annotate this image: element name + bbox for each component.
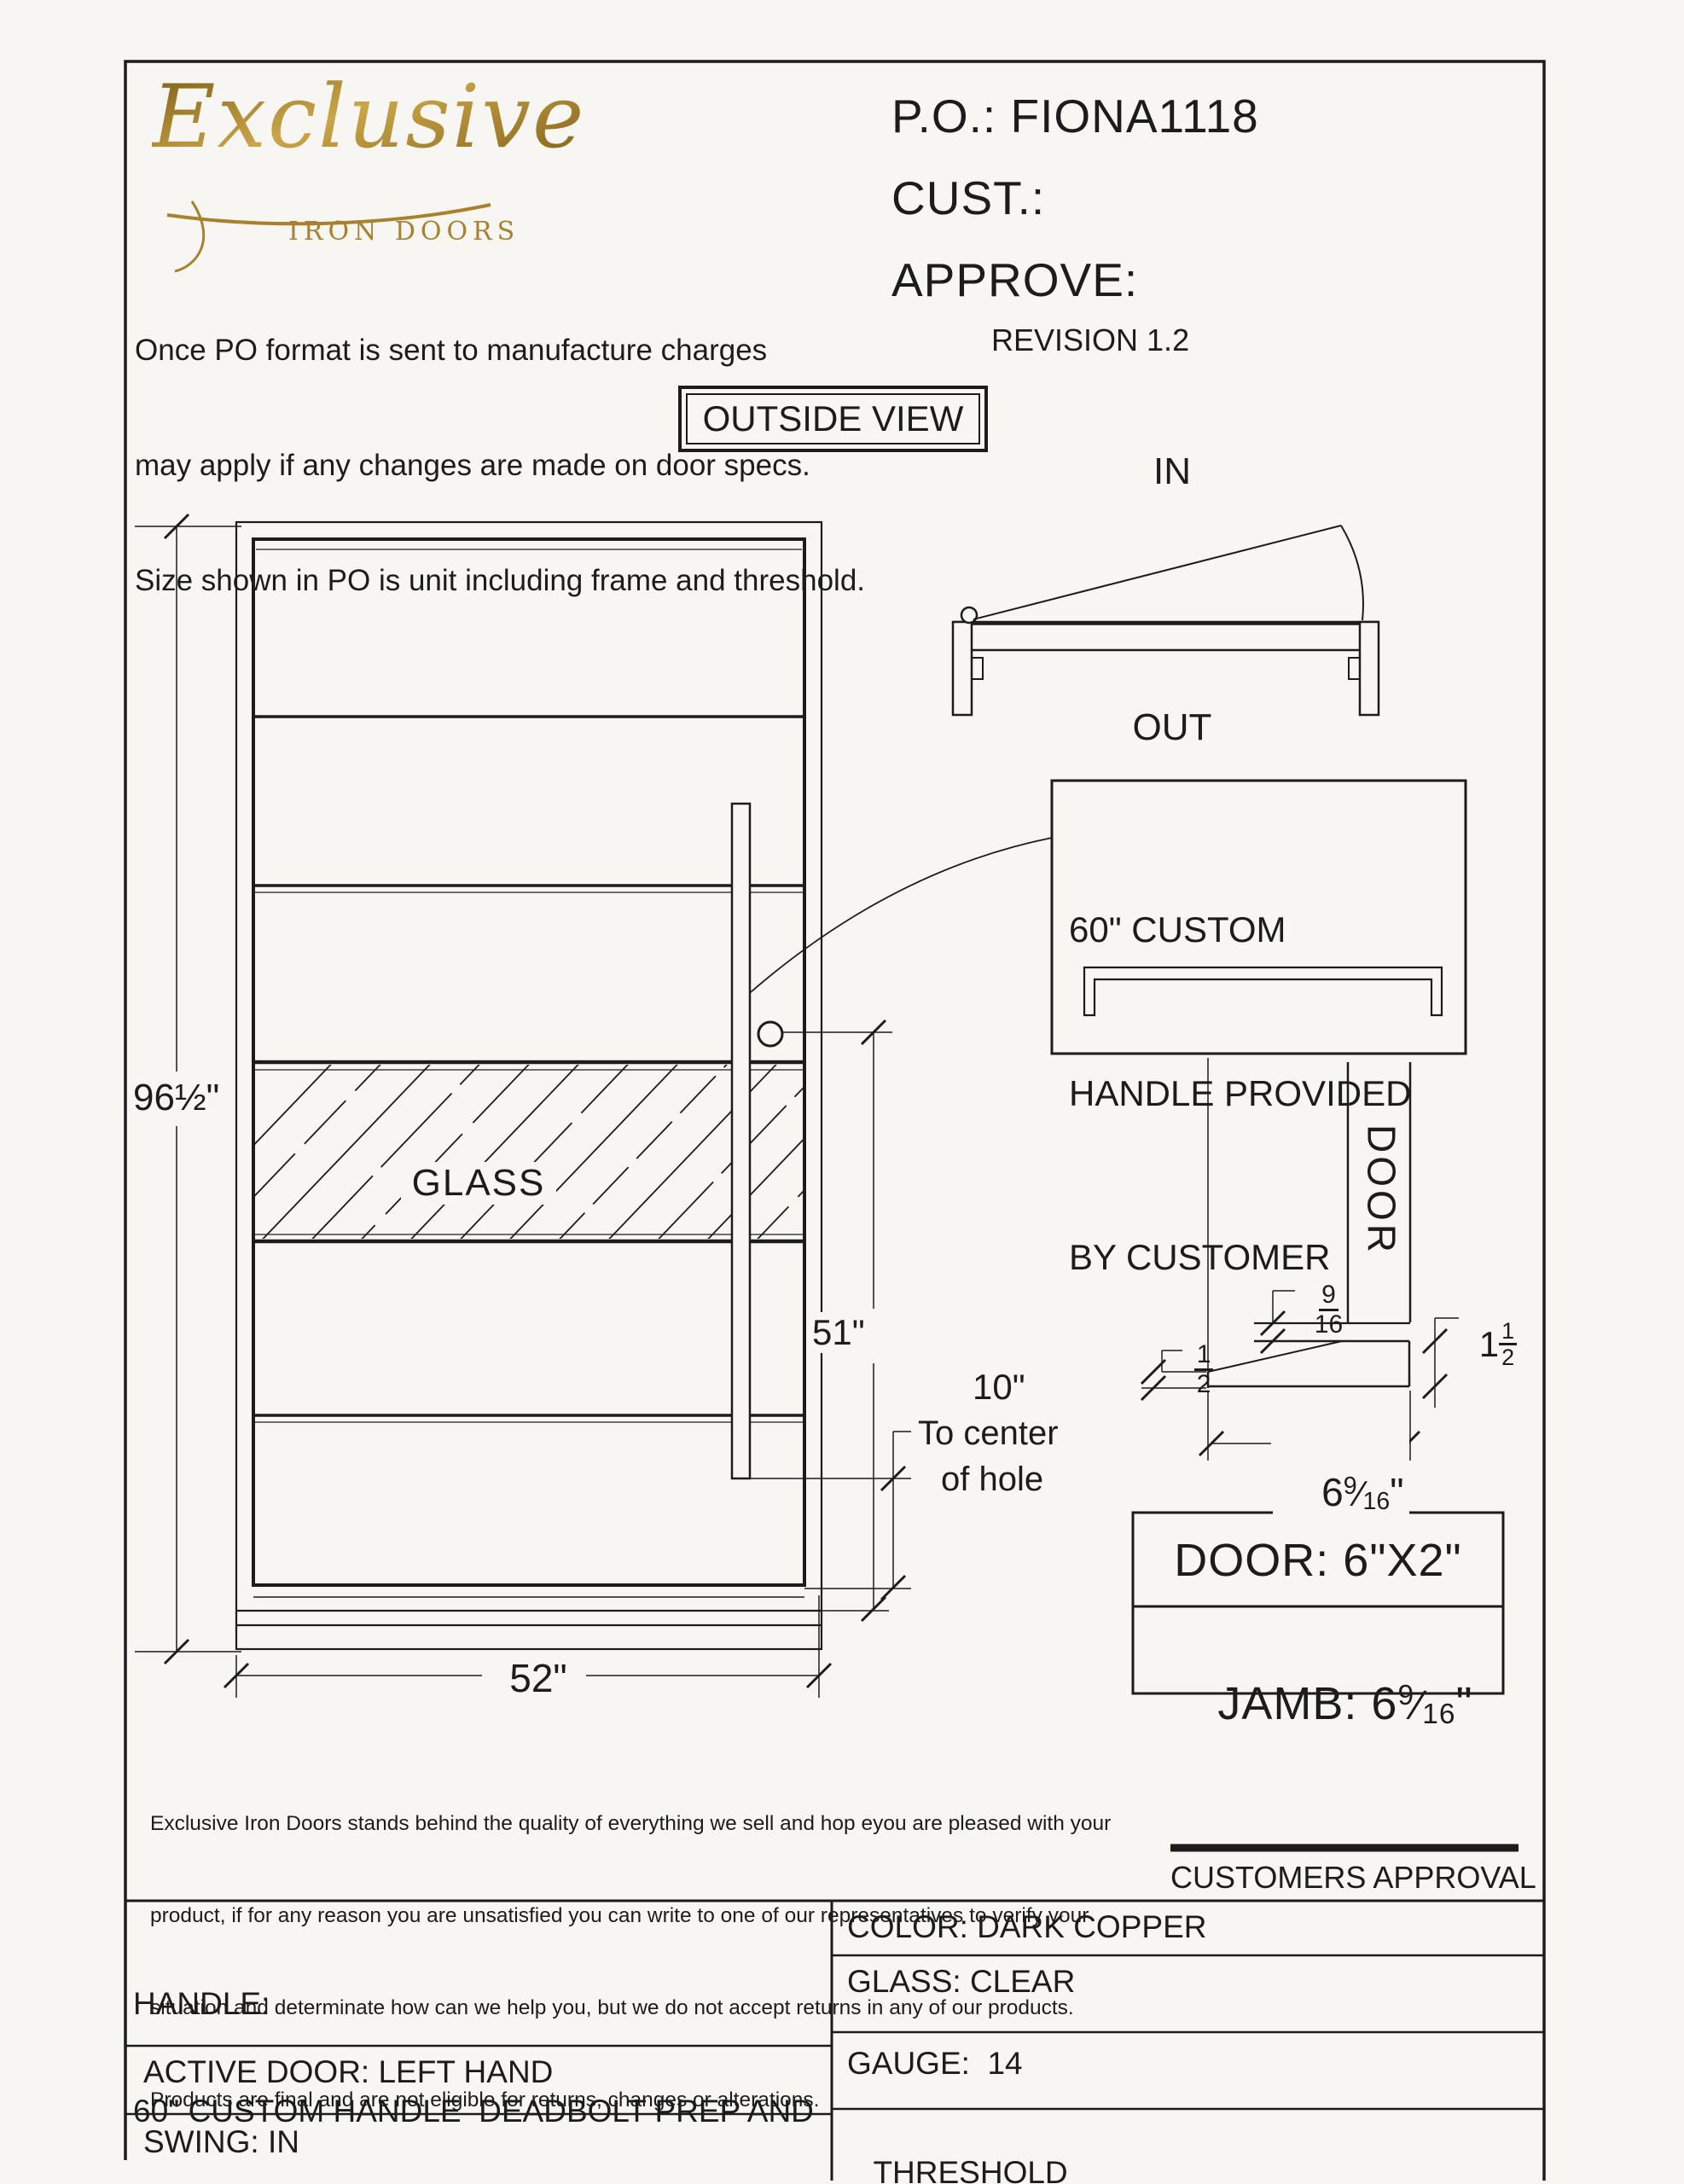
logo-subtitle: IRON DOORS bbox=[288, 217, 493, 247]
notice-line-3: Size shown in PO is unit including frame… bbox=[135, 561, 865, 600]
notice-line-1: Once PO format is sent to manufacture ch… bbox=[135, 331, 865, 369]
table-cell-swing: SWING: IN bbox=[143, 2124, 299, 2160]
approve-field: APPROVE: bbox=[891, 253, 1138, 307]
scanned-door-spec-sheet: Exclusive IRON DOORS P.O.: FIONA1118 CUS… bbox=[0, 0, 1684, 2184]
logo-exclusive: Exclusive bbox=[152, 67, 585, 168]
threshold-label: THRESHOLD bbox=[873, 2155, 1067, 2184]
hole-offset-dimension: 10" bbox=[973, 1367, 1025, 1408]
swing-in-label: IN bbox=[1138, 450, 1206, 493]
jamb-size-numerator: 9 bbox=[1397, 1680, 1414, 1711]
fraction-slash: ⁄ bbox=[1357, 1474, 1363, 1513]
jamb-size-denominator: 16 bbox=[1422, 1699, 1455, 1730]
po-notice: Once PO format is sent to manufacture ch… bbox=[135, 254, 865, 677]
width-dimension: 52" bbox=[491, 1655, 586, 1701]
hole-height-dimension: 51" bbox=[807, 1312, 870, 1353]
handle-note: 60" CUSTOM HANDLE PROVIDED BY CUSTOMER bbox=[1069, 793, 1411, 1394]
fine-print-line-1: Exclusive Iron Doors stands behind the q… bbox=[138, 1809, 1179, 1839]
thickness-denominator: 2 bbox=[1499, 1345, 1517, 1369]
thickness-dimension: 112 bbox=[1464, 1304, 1517, 1385]
dimension-lines bbox=[135, 526, 911, 1698]
gap-denominator: 16 bbox=[1312, 1311, 1345, 1339]
jamb-size-prefix: JAMB: 6 bbox=[1217, 1678, 1397, 1729]
customers-approval-label: CUSTOMERS APPROVAL bbox=[1170, 1860, 1519, 1896]
table-cell-gauge: GAUGE: 14 bbox=[847, 2046, 1023, 2082]
jamb-width-whole: 6 bbox=[1321, 1470, 1344, 1514]
jamb-width-suffix: " bbox=[1390, 1470, 1403, 1514]
table-cell-glass: GLASS: CLEAR bbox=[847, 1964, 1075, 2000]
handle-hole bbox=[758, 1022, 782, 1046]
glass-hatch bbox=[154, 1054, 935, 1250]
hole-note-line-1: To center bbox=[918, 1414, 1059, 1453]
height-dimension: 96½" bbox=[128, 1077, 224, 1119]
glass-label: GLASS bbox=[401, 1162, 556, 1205]
swing-out-label: OUT bbox=[1124, 706, 1220, 749]
fraction-slash: ⁄ bbox=[1414, 1682, 1422, 1728]
handle-bar bbox=[732, 804, 750, 1478]
table-cell-threshold: THRESHOLD 1 ½ to ½ Treshold bbox=[839, 2119, 1160, 2184]
gap-dimension: 916 bbox=[1297, 1266, 1345, 1353]
swing-diagram bbox=[953, 526, 1379, 715]
outside-view-label: OUTSIDE VIEW bbox=[703, 398, 964, 439]
jamb-size-label: JAMB: 69⁄16" bbox=[1133, 1624, 1503, 1783]
table-cell-color: COLOR: DARK COPPER bbox=[847, 1909, 1206, 1945]
thickness-numerator: 1 bbox=[1499, 1319, 1517, 1345]
outside-view-box: OUTSIDE VIEW bbox=[678, 386, 988, 452]
handle-note-line-1: 60" CUSTOM bbox=[1069, 903, 1411, 957]
customer-field: CUST.: bbox=[891, 171, 1045, 225]
door-section-label: DOOR bbox=[1359, 1120, 1405, 1261]
jamb-width-denominator: 16 bbox=[1363, 1488, 1391, 1515]
handle-leader-arc bbox=[751, 838, 1052, 992]
jamb-size-suffix: " bbox=[1455, 1678, 1472, 1729]
jamb-width-numerator: 9 bbox=[1344, 1472, 1357, 1500]
handle-label: HANDLE: bbox=[133, 1986, 814, 2022]
dimension-ticks bbox=[165, 514, 905, 1687]
revision-label: REVISION 1.2 bbox=[991, 322, 1189, 358]
thickness-whole: 1 bbox=[1479, 1324, 1499, 1364]
table-cell-active-door: ACTIVE DOOR: LEFT HAND bbox=[143, 2054, 553, 2090]
po-number: P.O.: FIONA1118 bbox=[891, 89, 1259, 143]
hole-note-line-2: of hole bbox=[941, 1461, 1043, 1499]
lip-dimension: 12 bbox=[1179, 1326, 1213, 1413]
door-size-label: DOOR: 6"X2" bbox=[1133, 1534, 1503, 1587]
handle-note-line-2: HANDLE PROVIDED bbox=[1069, 1066, 1411, 1121]
lip-numerator: 1 bbox=[1194, 1341, 1214, 1371]
gap-numerator: 9 bbox=[1319, 1281, 1338, 1311]
lip-denominator: 2 bbox=[1194, 1371, 1214, 1398]
